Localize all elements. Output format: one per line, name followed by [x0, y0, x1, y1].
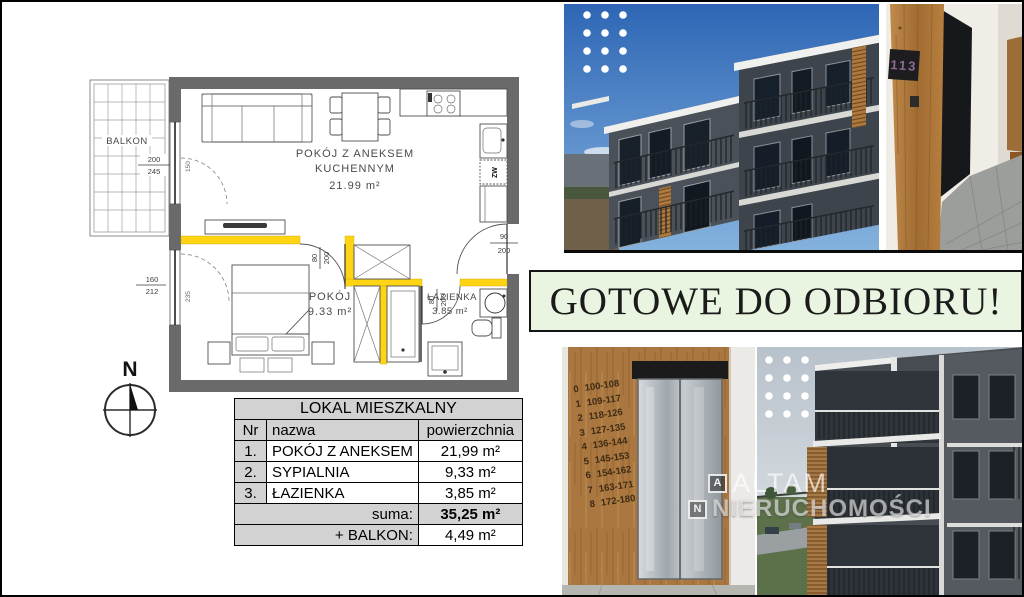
dim-bedroom-door: 80 200: [310, 247, 331, 269]
table-header-row: Nr nazwa powierzchnia: [235, 420, 523, 441]
dim-balcony-door-top: 200: [148, 155, 161, 164]
washing-machine-icon: [428, 342, 462, 376]
dim-entry-top: 90: [500, 232, 508, 241]
north-needle: [130, 384, 138, 410]
col-header-nr: Nr: [235, 420, 267, 441]
watermark-subname: NIERUCHOMOŚCI: [712, 497, 932, 521]
sum-value: 35,25 m²: [418, 504, 522, 525]
table-row: 1. POKÓJ Z ANEKSEM 21,99 m²: [235, 441, 523, 462]
dim-balcony-door-bottom: 245: [148, 167, 161, 176]
balcony-sum-label: + BALKON:: [235, 525, 419, 546]
table-row: 3. ŁAZIENKA 3,85 m²: [235, 483, 523, 504]
col-header-nazwa: nazwa: [267, 420, 419, 441]
dim-bedroom-window-top: 160: [146, 275, 159, 284]
table-sum-row: suma: 35,25 m²: [235, 504, 523, 525]
banner-text: GOTOWE DO ODBIORU!: [550, 279, 1003, 324]
bedroom-area: 9.33 m²: [308, 306, 352, 318]
bathroom-sink: [480, 289, 507, 317]
watermark-n-badge: N: [688, 500, 707, 519]
dim-entry-bottom: 200: [498, 246, 511, 255]
bedroom-window: 235 160 212: [136, 250, 229, 325]
stove-icon: [427, 91, 460, 116]
entry-door: 90 200: [457, 224, 518, 274]
balcony-label: BALKON: [106, 136, 148, 147]
cold-water-label: ZW: [492, 167, 499, 178]
bed: [232, 265, 309, 355]
table-row: 2. SYPIALNIA 9,33 m²: [235, 462, 523, 483]
real-estate-flyer: BALKON 200 245 150 235: [0, 0, 1024, 597]
svg-text:200: 200: [322, 252, 331, 265]
bathroom-label: ŁAZIENKA: [427, 292, 477, 303]
area-table: LOKAL MIESZKALNY Nr nazwa powierzchnia 1…: [234, 398, 523, 546]
cold-water-valve: ZW: [480, 160, 507, 222]
toilet-icon: [472, 318, 501, 338]
photo-building-top: [564, 4, 879, 250]
ready-banner: GOTOWE DO ODBIORU!: [529, 270, 1023, 332]
hall-closet: [387, 286, 422, 362]
bedroom-label: POKÓJ: [309, 290, 351, 303]
dim-balcony-door-side: 150: [185, 161, 192, 172]
compass-north-label: N: [122, 358, 137, 381]
door-number-plaque: 113: [888, 49, 920, 81]
photo-separator: [564, 250, 1024, 253]
sum-label: suma:: [235, 504, 419, 525]
col-header-powierzchnia: powierzchnia: [418, 420, 522, 441]
living-room-label-1: POKÓJ Z ANEKSEM: [296, 147, 414, 160]
dim-bedroom-window-bottom: 212: [146, 287, 159, 296]
living-room-area: 21.99 m²: [329, 180, 380, 192]
balcony: BALKON 200 245: [90, 80, 172, 236]
agency-watermark: A ALTAM N NIERUCHOMOŚCI: [688, 470, 932, 521]
watermark-a-badge: A: [708, 474, 727, 493]
dining-table: [330, 93, 390, 141]
bathroom-area: 3.85 m²: [432, 306, 468, 317]
photo-apartment-door: 113: [886, 4, 1024, 250]
table-title: LOKAL MIESZKALNY: [235, 399, 523, 420]
tv-sideboard: [205, 220, 285, 234]
kitchen-sink: [480, 124, 507, 158]
sofa: [202, 94, 312, 142]
table-balcony-row: + BALKON: 4,49 m²: [235, 525, 523, 546]
dim-bedroom-window-side: 235: [185, 291, 192, 302]
kitchen-counter: [400, 89, 507, 116]
compass: N: [97, 352, 167, 447]
balcony-sum-value: 4,49 m²: [418, 525, 522, 546]
door-number: 113: [890, 57, 918, 74]
table-title-row: LOKAL MIESZKALNY: [235, 399, 523, 420]
svg-text:80: 80: [310, 254, 319, 262]
living-room-label-2: KUCHENNYM: [315, 163, 395, 175]
watermark-name: ALTAM: [732, 470, 828, 496]
